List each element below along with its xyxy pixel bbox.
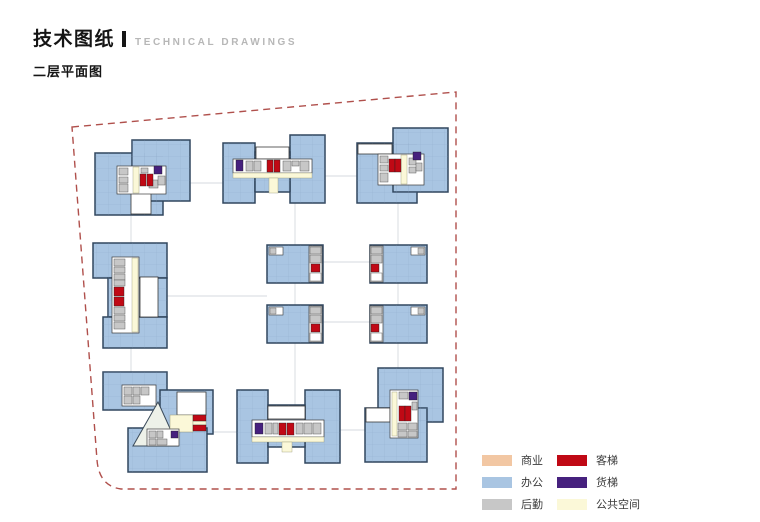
legend-swatch-logistics: [482, 499, 512, 510]
legend-swatch-freight-elevator: [557, 477, 587, 488]
passenger-elevator: [405, 406, 411, 421]
core: [147, 429, 179, 446]
building-6: [267, 305, 323, 343]
room-white: [366, 408, 390, 422]
core: [370, 306, 383, 342]
legend-swatch-public-space: [557, 499, 587, 510]
passenger-elevator: [114, 287, 124, 296]
legend-item-office: 办公: [482, 474, 543, 490]
freight-elevator: [154, 166, 162, 174]
legend-label-passenger-elevator: 客梯: [596, 452, 618, 468]
legend-item-commercial: 商业: [482, 452, 543, 468]
legend-item-freight-elevator: 货梯: [557, 474, 640, 490]
legend-item-logistics: 后勤: [482, 496, 543, 512]
building-4: [93, 243, 167, 348]
passenger-elevator: [311, 324, 320, 332]
core: [378, 152, 424, 185]
passenger-elevator: [399, 406, 405, 421]
room-white: [140, 277, 158, 317]
legend-swatch-office: [482, 477, 512, 488]
room-white: [131, 192, 151, 214]
legend-label-public-space: 公共空间: [596, 496, 640, 512]
passenger-elevator: [279, 423, 286, 435]
freight-elevator: [255, 423, 263, 434]
freight-elevator: [236, 160, 243, 171]
building-8: [370, 305, 427, 343]
passenger-elevator: [395, 159, 401, 172]
legend-label-commercial: 商业: [521, 452, 543, 468]
freight-elevator: [171, 431, 178, 438]
passenger-elevator: [193, 415, 206, 421]
building-5: [267, 245, 323, 283]
building-1: [95, 140, 190, 215]
core: [122, 385, 156, 406]
core: [112, 257, 139, 333]
core: [370, 246, 383, 282]
passenger-elevator: [371, 324, 379, 332]
room-white: [256, 147, 289, 159]
legend-swatch-commercial: [482, 455, 512, 466]
freight-elevator: [409, 392, 417, 400]
passenger-elevator: [193, 425, 206, 431]
freight-elevator: [413, 152, 421, 160]
legend-item-passenger-elevator: 客梯: [557, 452, 640, 468]
building-3: [357, 128, 448, 203]
building-9: [103, 372, 213, 472]
floor-plan: [0, 0, 760, 522]
passenger-elevator: [267, 160, 273, 172]
legend-label-logistics: 后勤: [521, 496, 543, 512]
building-2: [223, 135, 325, 203]
passenger-elevator: [311, 264, 320, 272]
passenger-elevator: [147, 174, 153, 186]
building-10: [237, 390, 340, 463]
core: [390, 390, 418, 438]
core: [309, 306, 322, 342]
legend-label-freight-elevator: 货梯: [596, 474, 618, 490]
room-white: [358, 144, 392, 154]
passenger-elevator: [274, 160, 280, 172]
passenger-elevator: [287, 423, 294, 435]
passenger-elevator: [140, 174, 146, 186]
legend-swatch-passenger-elevator: [557, 455, 587, 466]
building-11: [365, 368, 443, 462]
room-white: [177, 392, 206, 415]
passenger-elevator: [371, 264, 379, 272]
passenger-elevator: [114, 297, 124, 306]
page: 技术图纸TECHNICAL DRAWINGS 二层平面图: [0, 0, 760, 522]
legend-column-left: 商业 办公 后勤: [482, 452, 543, 518]
legend-column-right: 客梯 货梯 公共空间: [557, 452, 640, 518]
building-7: [370, 245, 427, 283]
core: [309, 246, 322, 282]
legend: 商业 办公 后勤 客梯 货梯 公共空间: [482, 452, 640, 518]
passenger-elevator: [389, 159, 395, 172]
legend-item-public-space: 公共空间: [557, 496, 640, 512]
room-white: [268, 406, 305, 419]
legend-label-office: 办公: [521, 474, 543, 490]
core: [117, 166, 166, 194]
